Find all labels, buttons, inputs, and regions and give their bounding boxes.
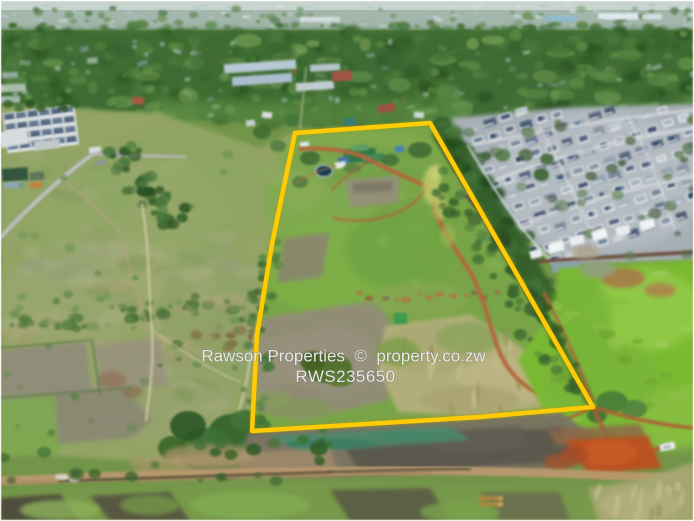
svg-text:Rawson Properties © property: Rawson Properties © property.co.zw [201, 347, 486, 366]
svg-text:RWS235650: RWS235650 [295, 367, 395, 386]
